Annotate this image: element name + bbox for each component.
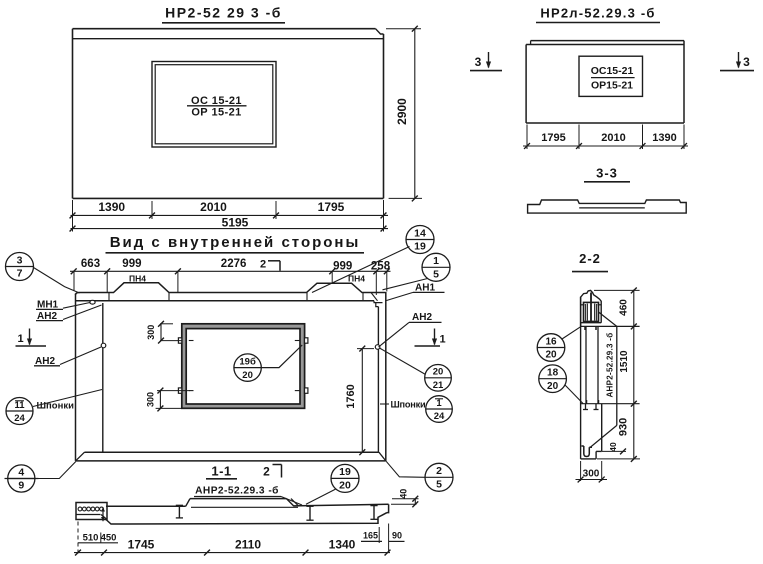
svg-text:НР2-52 29 3 -б: НР2-52 29 3 -б xyxy=(165,5,282,21)
svg-text:2010: 2010 xyxy=(200,200,227,214)
svg-text:1510: 1510 xyxy=(619,350,630,373)
svg-text:40: 40 xyxy=(399,489,409,499)
svg-text:3: 3 xyxy=(743,55,750,69)
svg-text:АНР2-52.29.3 -б: АНР2-52.29.3 -б xyxy=(195,485,279,497)
svg-text:90: 90 xyxy=(392,531,402,541)
svg-text:450: 450 xyxy=(101,533,117,544)
svg-text:5: 5 xyxy=(433,269,439,281)
svg-text:510: 510 xyxy=(83,533,99,544)
svg-text:20: 20 xyxy=(547,381,559,392)
svg-text:460: 460 xyxy=(619,299,630,316)
svg-text:24: 24 xyxy=(434,411,445,422)
svg-text:2110: 2110 xyxy=(235,538,261,552)
svg-text:1: 1 xyxy=(17,333,23,345)
svg-text:Вид с внутренней стороны: Вид с внутренней стороны xyxy=(110,234,361,251)
svg-text:1-1: 1-1 xyxy=(211,464,231,479)
svg-text:19б: 19б xyxy=(239,356,256,367)
svg-text:14: 14 xyxy=(414,227,426,239)
svg-text:Шпонки: Шпонки xyxy=(37,401,75,412)
svg-text:7: 7 xyxy=(17,268,23,280)
svg-text:1: 1 xyxy=(436,398,442,409)
svg-text:20: 20 xyxy=(545,350,557,361)
svg-text:1390: 1390 xyxy=(652,132,676,144)
svg-text:21: 21 xyxy=(433,380,444,391)
svg-text:5195: 5195 xyxy=(222,216,249,230)
svg-text:1340: 1340 xyxy=(329,538,356,552)
svg-text:ПН4: ПН4 xyxy=(129,274,146,284)
svg-text:ОС15-21: ОС15-21 xyxy=(591,65,634,77)
svg-text:Шпонки: Шпонки xyxy=(391,400,427,410)
svg-text:1795: 1795 xyxy=(318,200,345,214)
svg-text:258: 258 xyxy=(371,261,391,273)
svg-text:3: 3 xyxy=(17,254,23,266)
svg-text:ПН4: ПН4 xyxy=(348,274,365,284)
svg-text:5: 5 xyxy=(436,479,442,491)
svg-text:1795: 1795 xyxy=(541,132,565,144)
svg-text:2276: 2276 xyxy=(221,258,247,270)
svg-text:20: 20 xyxy=(242,370,253,381)
svg-text:1: 1 xyxy=(433,255,439,267)
svg-text:АНР2-52.29.3 -б: АНР2-52.29.3 -б xyxy=(605,332,614,397)
svg-text:2-2: 2-2 xyxy=(579,251,601,266)
svg-text:300: 300 xyxy=(146,325,156,340)
svg-text:2: 2 xyxy=(263,465,270,479)
svg-text:300: 300 xyxy=(583,469,600,480)
svg-text:300: 300 xyxy=(146,392,156,407)
svg-text:АН2: АН2 xyxy=(412,312,432,323)
svg-text:2: 2 xyxy=(260,259,266,271)
svg-text:2900: 2900 xyxy=(395,98,409,125)
svg-text:19: 19 xyxy=(339,466,351,478)
svg-text:4: 4 xyxy=(18,466,24,478)
svg-text:999: 999 xyxy=(122,258,141,270)
svg-text:20: 20 xyxy=(433,367,444,378)
svg-text:11: 11 xyxy=(14,400,25,411)
svg-text:ОР 15-21: ОР 15-21 xyxy=(191,107,241,119)
svg-text:НР2л-52.29.3 -б: НР2л-52.29.3 -б xyxy=(540,6,655,21)
svg-text:19: 19 xyxy=(414,241,426,253)
svg-text:3-3: 3-3 xyxy=(596,166,618,181)
svg-text:1: 1 xyxy=(439,334,445,346)
svg-text:1760: 1760 xyxy=(345,384,357,408)
svg-text:9: 9 xyxy=(18,480,24,492)
svg-text:18: 18 xyxy=(547,368,559,379)
svg-text:1745: 1745 xyxy=(128,538,155,552)
svg-text:20: 20 xyxy=(339,480,351,492)
svg-text:165: 165 xyxy=(363,531,378,541)
svg-text:999: 999 xyxy=(333,261,352,273)
svg-text:930: 930 xyxy=(618,418,630,436)
svg-text:3: 3 xyxy=(475,55,482,69)
svg-text:2010: 2010 xyxy=(601,132,625,144)
svg-text:ОР15-21: ОР15-21 xyxy=(591,80,633,92)
svg-text:16: 16 xyxy=(545,336,557,347)
svg-text:2: 2 xyxy=(436,465,442,477)
svg-text:1390: 1390 xyxy=(98,200,125,214)
svg-text:24: 24 xyxy=(14,413,25,424)
svg-text:40: 40 xyxy=(608,442,618,452)
svg-text:663: 663 xyxy=(81,258,100,270)
